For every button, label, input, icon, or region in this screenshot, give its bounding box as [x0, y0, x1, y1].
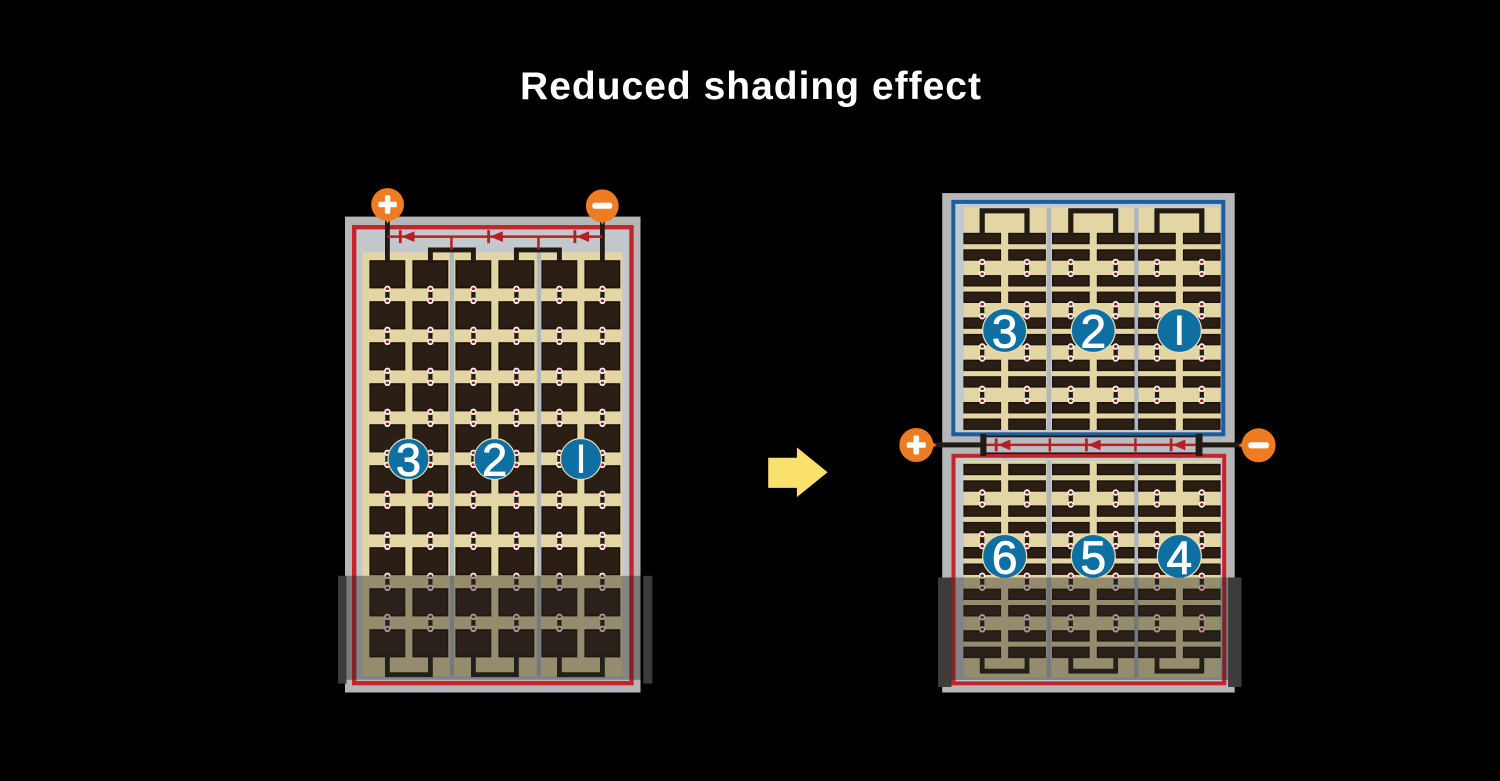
- svg-text:4: 4: [1167, 532, 1193, 584]
- svg-text:5: 5: [1080, 532, 1106, 584]
- svg-text:2: 2: [482, 435, 507, 486]
- svg-text:2: 2: [1080, 306, 1106, 358]
- svg-text:3: 3: [992, 306, 1018, 358]
- svg-text:Reduced shading effect: Reduced shading effect: [520, 65, 982, 108]
- svg-text:3: 3: [396, 435, 421, 486]
- svg-text:6: 6: [992, 532, 1018, 584]
